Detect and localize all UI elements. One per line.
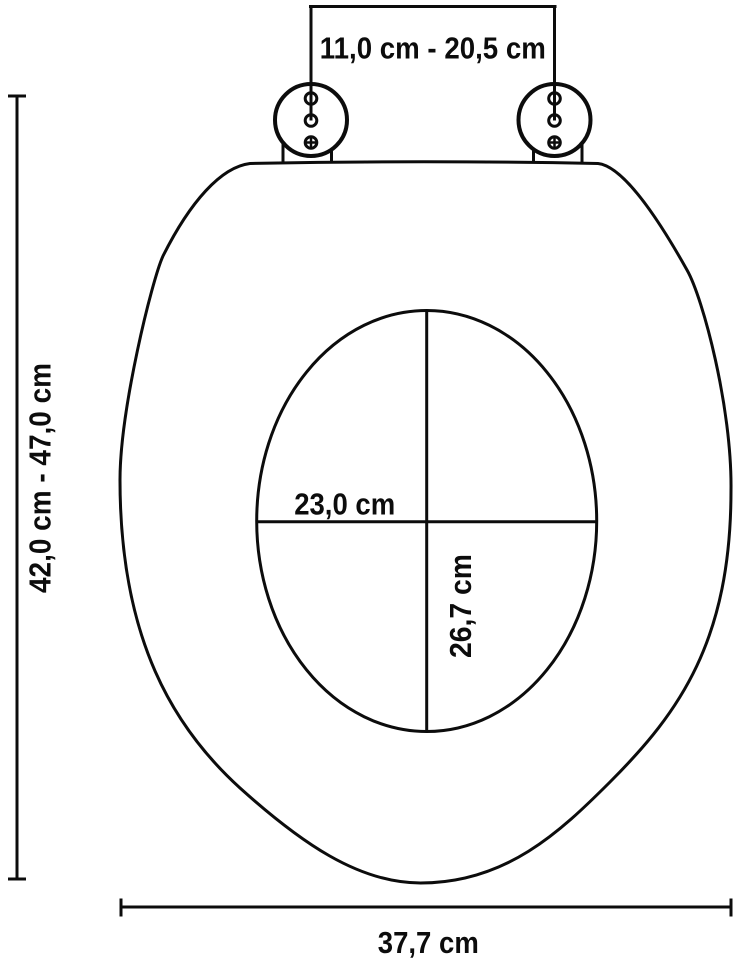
svg-text:26,7 cm: 26,7 cm xyxy=(443,554,478,658)
svg-text:23,0 cm: 23,0 cm xyxy=(294,486,395,521)
svg-text:42,0 cm - 47,0 cm: 42,0 cm - 47,0 cm xyxy=(22,363,57,593)
svg-text:11,0 cm - 20,5 cm: 11,0 cm - 20,5 cm xyxy=(320,31,546,66)
svg-text:37,7 cm: 37,7 cm xyxy=(378,925,479,960)
